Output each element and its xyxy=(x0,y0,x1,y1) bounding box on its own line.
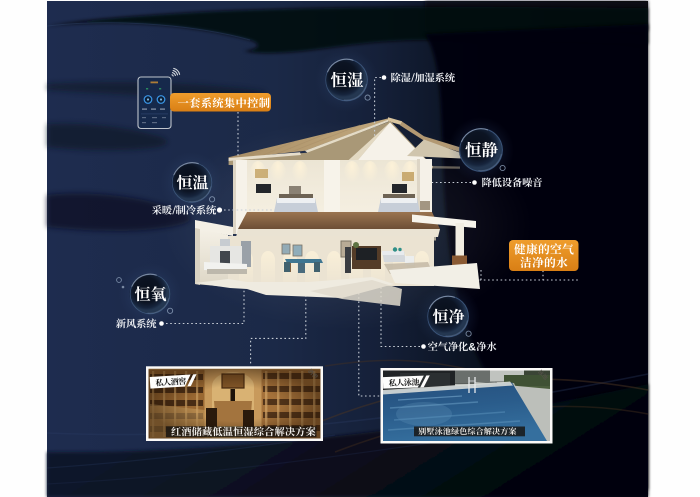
svg-text:&: & xyxy=(468,341,476,353)
